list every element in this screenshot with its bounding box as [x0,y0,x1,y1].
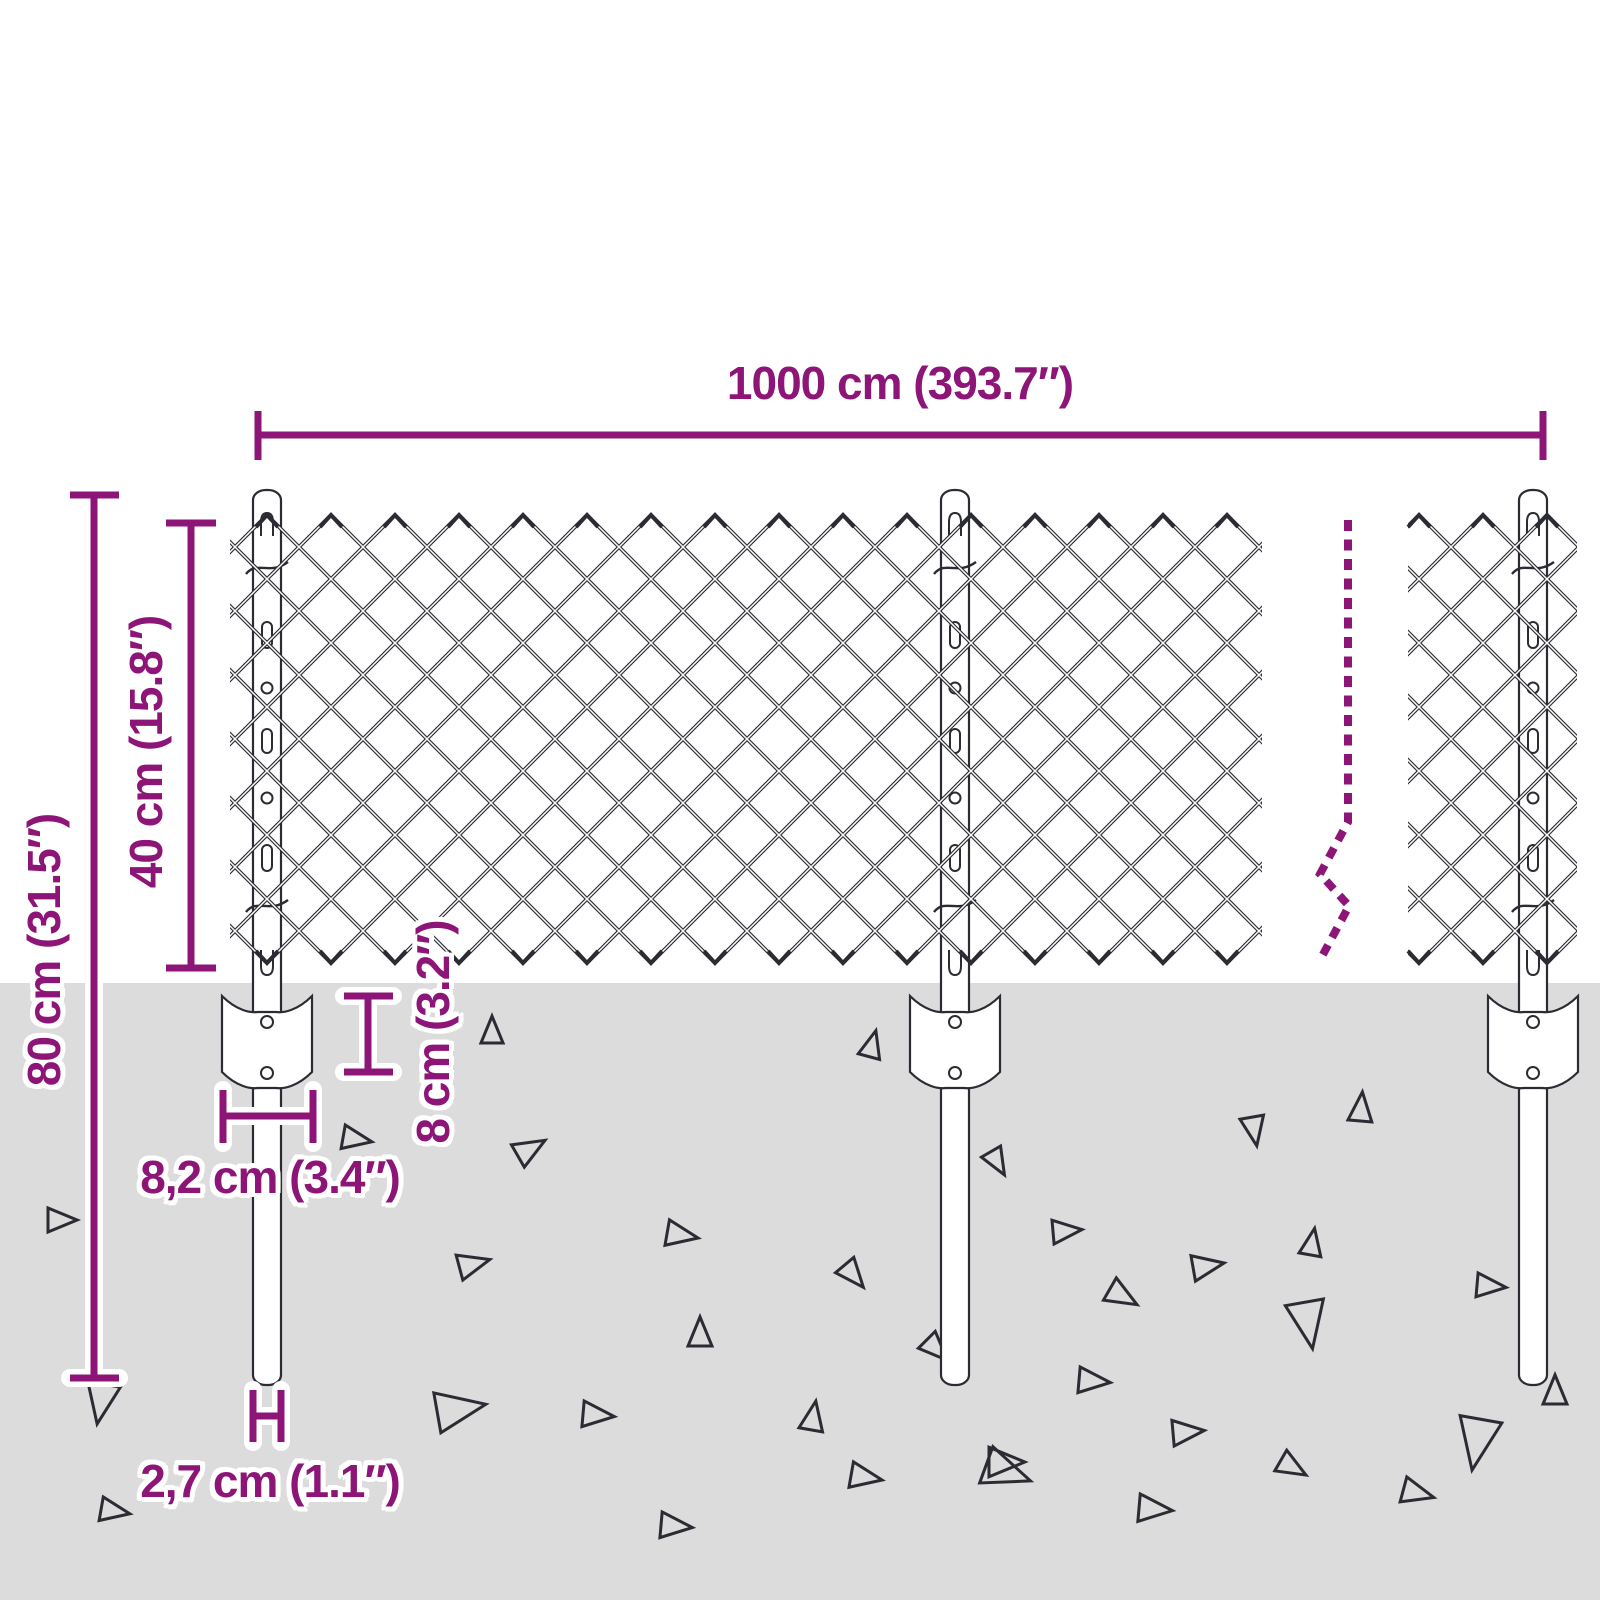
diagram-drawing [0,0,1600,1600]
label-post-total-height: 80 cm (31.5″) [17,814,71,1086]
label-bracket-width: 8,2 cm (3.4″) [140,1150,400,1204]
bracket-hole [1527,1016,1539,1028]
bracket-hole [261,1067,273,1079]
mesh-section-right [1408,515,1577,963]
bracket-hole [261,1016,273,1028]
label-bracket-depth: 8 cm (3.2″) [406,920,460,1143]
mesh-section-left [230,515,1262,963]
label-post-diameter: 2,7 cm (1.1″) [140,1454,400,1508]
break-line-icon [1320,520,1349,960]
bracket-hole [1527,1067,1539,1079]
label-fence-length: 1000 cm (393.7″) [727,356,1073,410]
bracket-hole [949,1067,961,1079]
label-mesh-height: 40 cm (15.8″) [119,616,173,888]
bracket-hole [949,1016,961,1028]
fence-dimension-diagram: 1000 cm (393.7″) 80 cm (31.5″) 40 cm (15… [0,0,1600,1600]
chain-link-mesh-group [230,515,1577,963]
